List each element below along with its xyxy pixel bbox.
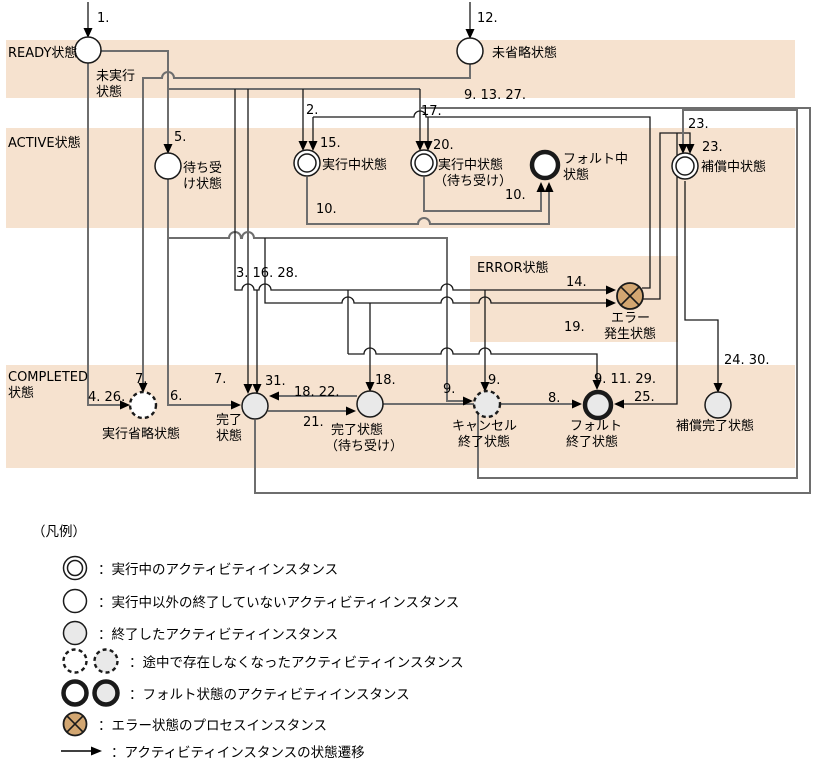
state-label: （待ち受け） <box>325 439 403 454</box>
state-compensation-completed <box>705 392 731 418</box>
band-label: COMPLETED <box>8 370 88 385</box>
state-fault-ended <box>585 392 611 418</box>
transition-number: 8. <box>548 391 560 406</box>
state-label: 終了状態 <box>458 434 510 450</box>
legend-row-text: ：実行中以外の終了していないアクティビティインスタンス <box>98 591 459 611</box>
white-icon <box>64 590 87 613</box>
state-label: 完了 <box>216 413 242 428</box>
state-execution-skipped <box>130 392 156 418</box>
transition-number: 9. <box>488 373 500 388</box>
legend-icon-double <box>60 553 91 583</box>
dashed-white-icon <box>64 650 87 673</box>
legend: （凡例） ：実行中のアクティビティインスタンス：実行中以外の終了していないアクテ… <box>0 0 814 245</box>
fault-gray-icon <box>95 682 118 705</box>
double-icon <box>68 561 83 576</box>
state-label: 実行省略状態 <box>102 426 180 442</box>
transition-number: 14. <box>566 275 587 290</box>
legend-icon-gray <box>60 618 91 648</box>
state-completed <box>242 393 268 419</box>
legend-row-3: ：終了したアクティビティインスタンス <box>60 618 338 648</box>
state-label: 発生状態 <box>604 326 656 342</box>
legend-row-text: ：エラー状態のプロセスインスタンス <box>98 714 327 734</box>
transition-number: 9. 11. 29. <box>594 372 656 387</box>
fault-white-icon <box>64 682 87 705</box>
legend-row-5: ：フォルト状態のアクティビティインスタンス <box>60 678 410 708</box>
transition-number: 24. 30. <box>724 353 769 368</box>
state-transition-diagram: READY状態ACTIVE状態ERROR状態COMPLETED状態未実行状態未省… <box>0 0 814 765</box>
transition-number: 18. 22. <box>294 385 339 400</box>
legend-icon-arrow <box>60 736 104 765</box>
arrow-icon <box>91 747 102 756</box>
legend-row-4: ：途中で存在しなくなったアクティビティインスタンス <box>60 646 464 676</box>
state-label: 補償完了状態 <box>676 418 754 434</box>
legend-row-7: ：アクティビティインスタンスの状態遷移 <box>60 736 365 765</box>
legend-header: （凡例） <box>32 520 86 540</box>
gray-icon <box>64 622 87 645</box>
transition-number: 19. <box>564 320 585 335</box>
state-label: 完了状態 <box>331 422 383 438</box>
transition-number: 3. 16. 28. <box>236 266 298 281</box>
legend-row-2: ：実行中以外の終了していないアクティビティインスタンス <box>60 586 459 616</box>
transition-number: 4. 26. <box>88 390 125 405</box>
transition-number: 21. <box>303 415 324 430</box>
legend-icon-dashed-white-dashed-gray <box>60 646 122 676</box>
transition-number: 18. <box>375 373 396 388</box>
state-cancel-ended <box>474 391 500 417</box>
transition-number: 6. <box>170 389 182 404</box>
legend-row-text: ：実行中のアクティビティインスタンス <box>98 558 338 578</box>
state-completed-waiting <box>357 391 383 417</box>
legend-icon-fault-white-fault-gray <box>60 678 122 708</box>
transition-number: 7. <box>214 372 226 387</box>
dashed-gray-icon <box>95 650 118 673</box>
state-label: 状態 <box>216 428 242 444</box>
state-label: エラー <box>611 311 650 326</box>
transition-number: 9. <box>443 382 455 397</box>
state-label: 終了状態 <box>566 434 618 450</box>
legend-row-text: ：終了したアクティビティインスタンス <box>98 623 338 643</box>
band-label: 状態 <box>8 385 34 401</box>
transition-number: 31. <box>265 374 286 389</box>
legend-icon-white <box>60 586 91 616</box>
legend-row-text: ：途中で存在しなくなったアクティビティインスタンス <box>129 651 464 671</box>
legend-icon-error <box>60 709 91 739</box>
band-label: ERROR状態 <box>477 260 549 276</box>
transition-number: 25. <box>634 390 655 405</box>
transition-number: 7. <box>135 372 147 387</box>
legend-row-text: ：アクティビティインスタンスの状態遷移 <box>111 741 365 761</box>
legend-row-1: ：実行中のアクティビティインスタンス <box>60 553 338 583</box>
legend-row-text: ：フォルト状態のアクティビティインスタンス <box>129 683 410 703</box>
legend-row-6: ：エラー状態のプロセスインスタンス <box>60 709 327 739</box>
state-label: キャンセル <box>452 419 517 434</box>
state-label: フォルト <box>570 419 622 434</box>
